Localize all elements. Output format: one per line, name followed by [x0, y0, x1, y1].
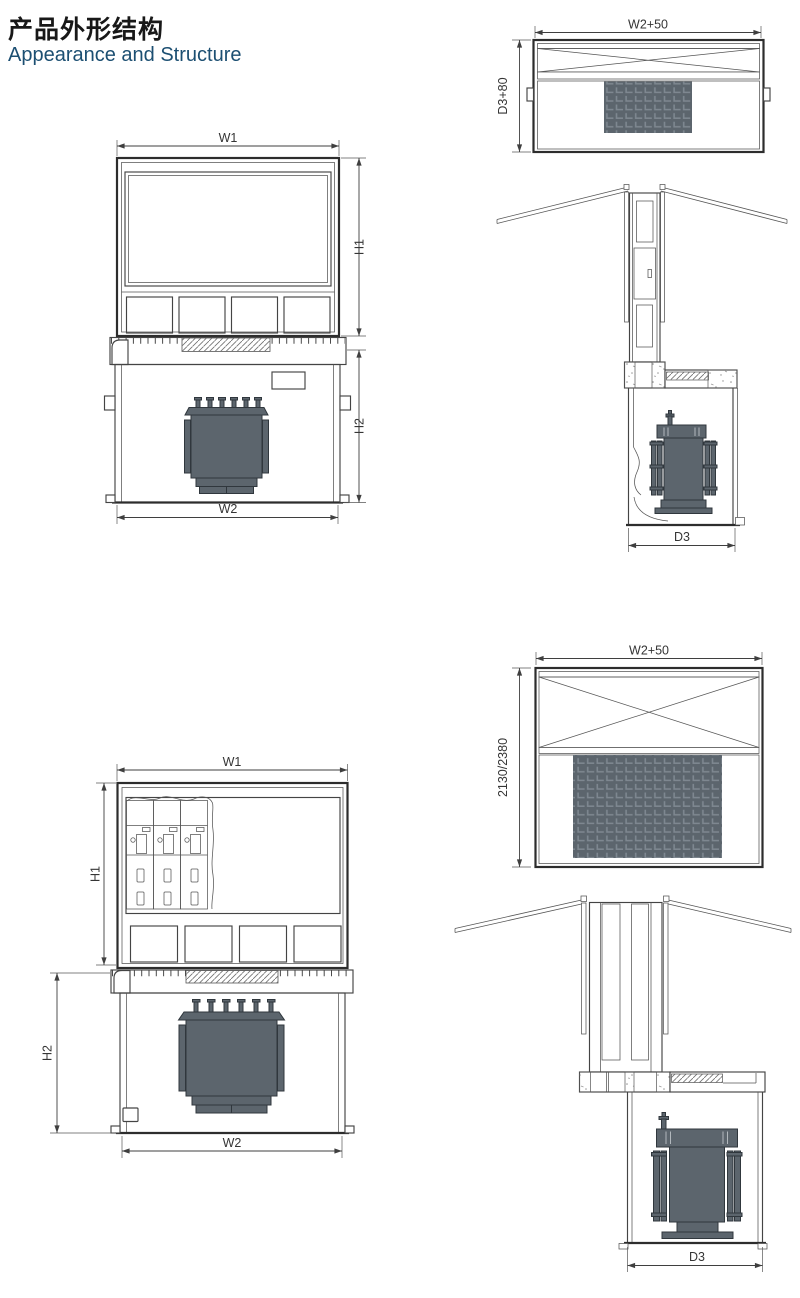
dim-w2-upper: W2	[117, 502, 338, 524]
louver-row	[131, 926, 342, 962]
underground-vault-side-upper	[626, 388, 745, 525]
dim-w1-lower: W1	[117, 755, 348, 781]
dim-label: H1	[89, 866, 103, 882]
dim-label: W2+50	[628, 18, 668, 32]
dim-label: D3	[689, 1250, 705, 1264]
dim-2130-2380: 2130/2380	[496, 668, 531, 867]
structure-drawings: W1	[0, 0, 800, 1298]
transformer-top-lower	[573, 755, 722, 858]
dim-label: W2	[219, 502, 238, 516]
foundation-strip-lower	[111, 970, 353, 993]
dim-w2p50-upper: W2+50	[535, 18, 761, 39]
dim-w2-lower: W2	[122, 1136, 342, 1158]
top-view-upper: W2+50 D3+80	[496, 18, 770, 153]
switch-unit	[154, 801, 181, 910]
dim-w2p50-lower: W2+50	[536, 644, 762, 666]
foundation-side-lower	[580, 1072, 766, 1092]
cabinet-front-upper	[117, 158, 339, 336]
dim-label: H2	[41, 1045, 55, 1061]
louver-row	[127, 297, 331, 333]
dim-h2-upper: H2	[344, 350, 367, 503]
side-view-upper: D3	[497, 185, 787, 553]
transformer-front-upper	[185, 398, 269, 494]
switch-unit	[127, 801, 154, 910]
dim-label: W1	[219, 131, 238, 145]
dim-h2-lower: H2	[41, 973, 116, 1133]
front-view-lower: W1	[41, 755, 355, 1158]
dim-w1-upper: W1	[117, 131, 339, 156]
dim-h1-upper: H1	[341, 158, 367, 336]
side-view-lower: D3	[455, 896, 791, 1272]
cabinet-side-upper	[630, 193, 661, 362]
dim-label: W1	[223, 755, 242, 769]
dim-label: W2+50	[629, 644, 669, 658]
transformer-front-lower	[179, 1000, 285, 1114]
dim-label: W2	[223, 1136, 242, 1150]
page: 产品外形结构 Appearance and Structure	[0, 0, 800, 1298]
dim-label: D3	[674, 530, 690, 544]
dim-d3-lower: D3	[628, 1247, 763, 1272]
top-view-lower: W2+50 2130/2380	[496, 644, 763, 868]
foundation-strip-upper	[110, 338, 346, 365]
underground-vault-lower	[111, 993, 354, 1133]
underground-vault-upper	[105, 365, 351, 503]
dim-label: 2130/2380	[496, 738, 510, 797]
underground-vault-side-lower	[619, 1092, 767, 1249]
cabinet-front-lower	[118, 783, 348, 968]
transformer-top-upper	[604, 82, 692, 134]
dim-d3-upper: D3	[629, 528, 736, 552]
dim-label: H2	[353, 418, 367, 434]
dim-h1-lower: H1	[89, 783, 117, 965]
dim-d3p80-upper: D3+80	[496, 40, 531, 152]
transformer-side-upper	[650, 411, 717, 514]
front-view-upper: W1	[105, 131, 367, 524]
bushings	[193, 1000, 276, 1013]
dim-label: H1	[353, 239, 367, 255]
dim-label: D3+80	[496, 77, 510, 114]
switch-unit	[181, 801, 208, 910]
transformer-side-lower	[652, 1113, 743, 1239]
cabinet-side-lower	[590, 903, 663, 1073]
foundation-side-upper	[625, 362, 738, 388]
switchgear-units	[127, 797, 214, 909]
